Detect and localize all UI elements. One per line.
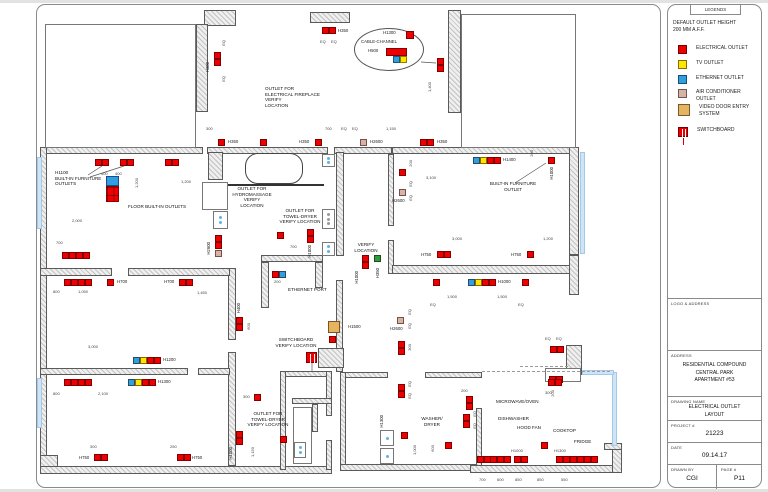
dimension-label: 700	[56, 241, 63, 245]
outlet-square	[71, 379, 78, 386]
outlet-square	[329, 336, 336, 343]
outlet-square	[236, 324, 243, 331]
outlet-label: H1000	[498, 280, 511, 284]
electrical-outlet	[522, 279, 529, 286]
electrical-outlet	[218, 139, 225, 146]
outlet-square	[236, 431, 243, 438]
electrical-outlet	[514, 456, 528, 463]
outlet-square	[374, 255, 381, 262]
outlet-square	[489, 279, 496, 286]
outlet-label: H300	[206, 62, 210, 72]
wall-segment	[336, 152, 344, 256]
outlet-label: H1300	[158, 380, 171, 384]
annotation: BUILT-IN FURNITUREOUTLET	[490, 181, 536, 192]
dimension-label: EQ	[430, 303, 436, 307]
plumbing-fixture	[294, 442, 306, 458]
wall-segment	[315, 262, 323, 288]
dimension-label: 800	[53, 290, 60, 294]
outlet-label: H1200	[163, 358, 176, 362]
dimension-label: 250	[170, 445, 177, 449]
dimension-label: 200	[530, 150, 534, 157]
callout-label-bottom: H500	[368, 49, 378, 53]
callout-label-mid: CABLE-CHANNEL	[361, 40, 397, 44]
dimension-label: 1,150	[386, 127, 396, 131]
dimension-label: 1,400	[428, 82, 432, 92]
annotation: DISHWASHER	[498, 416, 529, 422]
outlet-square	[362, 262, 369, 269]
outlet-square	[172, 159, 179, 166]
outlet-square	[475, 279, 482, 286]
outlet-square	[468, 279, 475, 286]
outlet-square	[120, 159, 127, 166]
outlet-square	[591, 456, 598, 463]
electrical-outlet	[466, 396, 473, 410]
air-conditioner-outlet	[360, 139, 367, 146]
outlet-square	[570, 456, 577, 463]
annotation: OUTLET FORELECTRICAL FIREPLACEVERIFYLOCA…	[265, 86, 320, 109]
outlet-label: H1000	[229, 447, 233, 460]
outlet-label: H350	[228, 140, 238, 144]
outlet-square	[444, 251, 451, 258]
electrical-outlet	[64, 379, 92, 386]
outlet-square	[142, 379, 149, 386]
outlet-square	[83, 252, 90, 259]
outlet-square	[398, 341, 405, 348]
dimension-label: EQ	[408, 323, 412, 329]
outlet-label: H350	[338, 29, 348, 33]
outlet-square	[149, 379, 156, 386]
dimension-label: EQ	[222, 40, 226, 46]
wall-segment	[392, 265, 578, 274]
outlet-label: H750	[511, 253, 521, 257]
wall-segment	[312, 404, 318, 432]
electrical-outlet	[541, 442, 548, 449]
electrical-outlet	[236, 431, 243, 445]
electrical-outlet	[177, 454, 191, 461]
outlet-square	[78, 279, 85, 286]
outlet-square	[577, 456, 584, 463]
dimension-label: EQ	[518, 303, 524, 307]
dimension-label: EQ	[409, 195, 413, 201]
electrical-outlet	[420, 139, 434, 146]
annotation: MICROWAVE/OVEN	[496, 399, 539, 405]
outlet-square	[521, 456, 528, 463]
dimension-label: EQ	[473, 423, 477, 429]
outlet-square	[214, 59, 221, 66]
outlet-square	[135, 379, 142, 386]
outlet-square	[102, 159, 109, 166]
dimension-label: 3,000	[88, 345, 98, 349]
outlet-label: H2600	[207, 242, 211, 255]
electrical-outlet	[277, 232, 284, 239]
electrical-outlet	[215, 235, 222, 249]
annotation: WASHER/DRYER	[421, 416, 442, 427]
dimension-label: EQ	[320, 40, 326, 44]
outlet-square	[62, 252, 69, 259]
outlet-square	[473, 157, 480, 164]
callout-outlet-square	[400, 56, 407, 63]
outlet-square	[463, 414, 470, 421]
outlet-square	[76, 252, 83, 259]
air-conditioner-outlet	[399, 189, 406, 196]
outlet-label: H1500	[348, 325, 361, 329]
electrical-outlet	[398, 384, 405, 398]
outlet-square	[236, 438, 243, 445]
outlet-square	[140, 357, 147, 364]
dimension-label: EQ	[408, 309, 412, 315]
outlet-square	[186, 279, 193, 286]
window	[580, 152, 585, 254]
dimension-label: 300	[90, 445, 97, 449]
dimension-label: 700	[479, 478, 486, 482]
dimension-label: EQ	[222, 76, 226, 82]
outlet-square	[497, 456, 504, 463]
outlet-square	[398, 384, 405, 391]
wall-segment	[198, 368, 230, 375]
outlet-square	[437, 65, 444, 72]
outlet-square	[548, 379, 555, 386]
outlet-label: H350	[376, 268, 380, 278]
outlet-square	[504, 456, 511, 463]
dimension-label: 850	[515, 478, 522, 482]
callout-outlet-square	[386, 48, 407, 56]
electrical-outlet	[556, 456, 584, 463]
dimension-label: 2,100	[98, 392, 108, 396]
outlet-square	[437, 251, 444, 258]
outlet-square	[315, 139, 322, 146]
dimension-label: 200	[274, 280, 281, 284]
annotation: HOOD FAN	[517, 425, 541, 431]
electrical-outlet	[477, 456, 491, 463]
dimension-label: EQ	[341, 127, 347, 131]
outlet-square	[398, 348, 405, 355]
wall-segment	[40, 466, 332, 474]
outlet-square	[463, 421, 470, 428]
electrical-outlet	[463, 414, 470, 428]
outlet-label: H2600	[390, 327, 403, 331]
electrical-outlet	[329, 336, 336, 343]
drawing-sheet: LEGENDS DEFAULT OUTLET HEIGHT 200 MM A.F…	[0, 0, 768, 492]
outlet-square	[254, 394, 261, 401]
outlet-square	[69, 252, 76, 259]
outlet-square	[215, 235, 222, 242]
dimension-label: EQ	[352, 127, 358, 131]
outlet-square	[260, 139, 267, 146]
electrical-outlet	[120, 159, 134, 166]
outlet-square	[399, 169, 406, 176]
wall-segment	[569, 147, 579, 255]
electrical-outlet	[64, 279, 92, 286]
outlet-square	[147, 357, 154, 364]
wall-segment	[392, 147, 578, 154]
dimension-label: 1,050	[78, 290, 88, 294]
annotation: H1100BUILT-IN FURNITUREOUTLETS	[55, 170, 101, 187]
wall-segment	[280, 371, 332, 377]
dimension-label: EQ	[409, 181, 413, 187]
dimension-label: 700	[325, 127, 332, 131]
outlet-square	[466, 396, 473, 403]
outlet-square	[482, 279, 489, 286]
wall-segment	[326, 440, 332, 470]
outlet-square	[184, 454, 191, 461]
electrical-outlet	[527, 251, 534, 258]
dimension-label: EQ	[408, 381, 412, 387]
electrical-outlet	[401, 432, 408, 439]
outlet-group	[128, 379, 156, 386]
wall-segment	[326, 371, 332, 416]
electrical-outlet	[95, 159, 109, 166]
dashed-line	[520, 366, 568, 367]
wall-segment	[470, 465, 618, 473]
outlet-square	[362, 255, 369, 262]
outlet-square	[480, 157, 487, 164]
electrical-outlet	[260, 139, 267, 146]
outlet-square	[177, 454, 184, 461]
wall-segment	[261, 255, 323, 262]
electrical-outlet	[307, 229, 314, 243]
outlet-square	[85, 379, 92, 386]
outlet-square	[584, 456, 591, 463]
annotation: VERIFYLOCATION	[354, 242, 377, 253]
wall-segment	[340, 372, 388, 378]
electrical-outlet	[62, 252, 90, 259]
dimension-label: EQ	[473, 411, 477, 417]
window	[612, 372, 617, 446]
annotation: FLOOR BUILT-IN OUTLETS	[128, 204, 186, 210]
wall-segment	[388, 154, 394, 226]
annotation: SWITCHBOARDVERIFY LOCATION	[276, 337, 317, 348]
outlet-square	[399, 189, 406, 196]
outlet-square	[494, 157, 501, 164]
wall-segment	[340, 464, 482, 471]
outlet-square	[101, 454, 108, 461]
wall-segment	[336, 280, 343, 350]
outlet-square	[398, 391, 405, 398]
dimension-label: 1,500	[497, 295, 507, 299]
wall-segment	[569, 255, 579, 295]
outlet-label: H2600	[370, 140, 383, 144]
annotation: OUTLET FORHYDROMASSAGEVERIFYLOCATION	[232, 186, 271, 209]
wall-segment	[425, 372, 482, 378]
outlet-label: H700	[164, 280, 174, 284]
plumbing-fixture	[213, 211, 228, 229]
electrical-outlet	[445, 442, 452, 449]
outlet-square	[322, 27, 329, 34]
dimension-label: 3,000	[452, 237, 462, 241]
electrical-outlet	[548, 157, 555, 164]
outlet-square	[165, 159, 172, 166]
dimension-label: 1,000	[413, 445, 417, 455]
dimension-label: 3,100	[426, 176, 436, 180]
electrical-outlet	[280, 436, 287, 443]
plumbing-fixture	[380, 448, 394, 464]
outlet-square	[433, 279, 440, 286]
electrical-outlet	[584, 456, 598, 463]
outlet-label: H1300	[380, 415, 384, 428]
outlet-square	[236, 317, 243, 324]
dimension-label: 300	[408, 344, 412, 351]
dimension-label: 300	[545, 391, 552, 395]
wall-segment	[128, 268, 230, 276]
outlet-square	[307, 229, 314, 236]
outlet-label: H1400	[503, 158, 516, 162]
outlet-square	[514, 456, 521, 463]
outlet-square	[397, 317, 404, 324]
outlet-square	[490, 456, 497, 463]
dimension-label: 700	[290, 245, 297, 249]
dimension-label: 300	[206, 127, 213, 131]
outlet-label: H750	[79, 456, 89, 460]
outlet-square	[555, 379, 562, 386]
outlet-square	[307, 236, 314, 243]
wall-segment	[448, 10, 461, 113]
outlet-label: H1000	[550, 167, 554, 180]
plumbing-fixture	[322, 154, 335, 167]
plumbing-fixture	[322, 209, 335, 229]
room-outline	[461, 14, 576, 148]
dimension-label: 850	[537, 478, 544, 482]
outlet-square	[272, 271, 279, 278]
plumbing-fixture	[380, 430, 394, 446]
outlet-square	[279, 271, 286, 278]
electrical-outlet	[374, 255, 381, 262]
dimension-label: 600	[497, 478, 504, 482]
outlet-square	[360, 139, 367, 146]
dimension-label: 1,500	[447, 295, 457, 299]
outlet-label: H1000	[308, 245, 312, 258]
outlet-square	[277, 232, 284, 239]
wall-segment	[204, 10, 236, 26]
dimension-label: 550	[561, 478, 568, 482]
electrical-outlet	[399, 169, 406, 176]
air-conditioner-outlet	[215, 250, 222, 257]
outlet-square	[64, 279, 71, 286]
outlet-square	[548, 157, 555, 164]
video-door-entry-outlet	[328, 321, 340, 333]
dimension-label: 1,200	[181, 180, 191, 184]
wall-segment	[228, 268, 236, 340]
dimension-label: EQ	[556, 337, 562, 341]
electrical-outlet	[107, 279, 114, 286]
dimension-label: 2,000	[72, 219, 82, 223]
outlet-label: H2600	[392, 199, 405, 203]
outlet-square	[85, 279, 92, 286]
electrical-outlet	[94, 454, 108, 461]
outlet-label: H350	[299, 140, 309, 144]
outlet-group	[133, 357, 161, 364]
outlet-square	[127, 159, 134, 166]
room-outline	[45, 24, 196, 148]
dimension-label: 800	[53, 392, 60, 396]
tub-platform-line	[228, 184, 324, 186]
outlet-square	[214, 52, 221, 59]
window	[37, 378, 42, 428]
electrical-outlet	[179, 279, 193, 286]
room-outline	[202, 182, 228, 210]
outlet-square	[107, 279, 114, 286]
outlet-square	[95, 159, 102, 166]
wall-segment	[261, 262, 269, 308]
dimension-label: 200	[409, 160, 413, 167]
plumbing-fixture	[322, 242, 335, 256]
outlet-square	[154, 357, 161, 364]
outlet-group	[473, 157, 501, 164]
annotation: FRIDGE	[574, 439, 591, 445]
outlet-square	[64, 379, 71, 386]
wall-segment	[40, 268, 112, 276]
outlet-square	[420, 139, 427, 146]
dimension-label: 600	[247, 323, 251, 330]
callout-outlet-square	[393, 56, 400, 63]
dimension-label: 300	[243, 395, 250, 399]
wall-segment	[40, 368, 188, 375]
outlet-label: H700	[117, 280, 127, 284]
outlet-square	[427, 139, 434, 146]
dimension-label: EQ	[545, 337, 551, 341]
window	[37, 157, 42, 229]
electrical-outlet	[236, 317, 243, 331]
outlet-square	[78, 379, 85, 386]
outlet-label: H350	[437, 140, 447, 144]
outlet-square	[445, 442, 452, 449]
electrical-outlet	[214, 52, 221, 66]
electrical-outlet	[254, 394, 261, 401]
dimension-label: H1000	[511, 449, 523, 453]
callout-label-top: H1300	[383, 31, 396, 35]
outlet-square	[94, 454, 101, 461]
outlet-square	[179, 279, 186, 286]
electrical-outlet	[165, 159, 179, 166]
outlet-square	[280, 436, 287, 443]
callout-outlet-square	[406, 31, 414, 39]
wall-segment	[40, 147, 203, 154]
outlet-square	[527, 251, 534, 258]
wall-segment	[208, 152, 223, 180]
outlet-square	[477, 456, 484, 463]
outlet-label: H750	[192, 456, 202, 460]
outlet-square	[71, 279, 78, 286]
dimension-label: 1,200	[543, 237, 553, 241]
electrical-outlet	[490, 456, 511, 463]
floor-box-electrical	[106, 186, 119, 202]
outlet-square	[541, 442, 548, 449]
dimension-label: 1,450	[197, 291, 207, 295]
electrical-outlet	[398, 341, 405, 355]
outlet-square	[329, 27, 336, 34]
outlet-square	[563, 456, 570, 463]
outlet-square	[550, 346, 557, 353]
switchboard-symbol	[306, 352, 317, 363]
dimension-label: EQ	[408, 393, 412, 399]
wall-segment	[310, 12, 350, 23]
outlet-group	[272, 271, 286, 278]
dimension-label: H1300	[554, 449, 566, 453]
outlet-square	[133, 357, 140, 364]
electrical-outlet	[550, 346, 564, 353]
outlet-group	[468, 279, 496, 286]
annotation: OUTLET FORTOWEL-DRYERVERIFY LOCATION	[248, 411, 289, 428]
outlet-square	[557, 346, 564, 353]
outlet-square	[556, 456, 563, 463]
outlet-square	[128, 379, 135, 386]
electrical-outlet	[315, 139, 322, 146]
electrical-outlet	[322, 27, 336, 34]
air-conditioner-outlet	[397, 317, 404, 324]
outlet-square	[522, 279, 529, 286]
wall-segment	[340, 372, 346, 470]
annotation: ETHERNET PORT	[288, 287, 327, 293]
dashed-line	[482, 371, 610, 372]
